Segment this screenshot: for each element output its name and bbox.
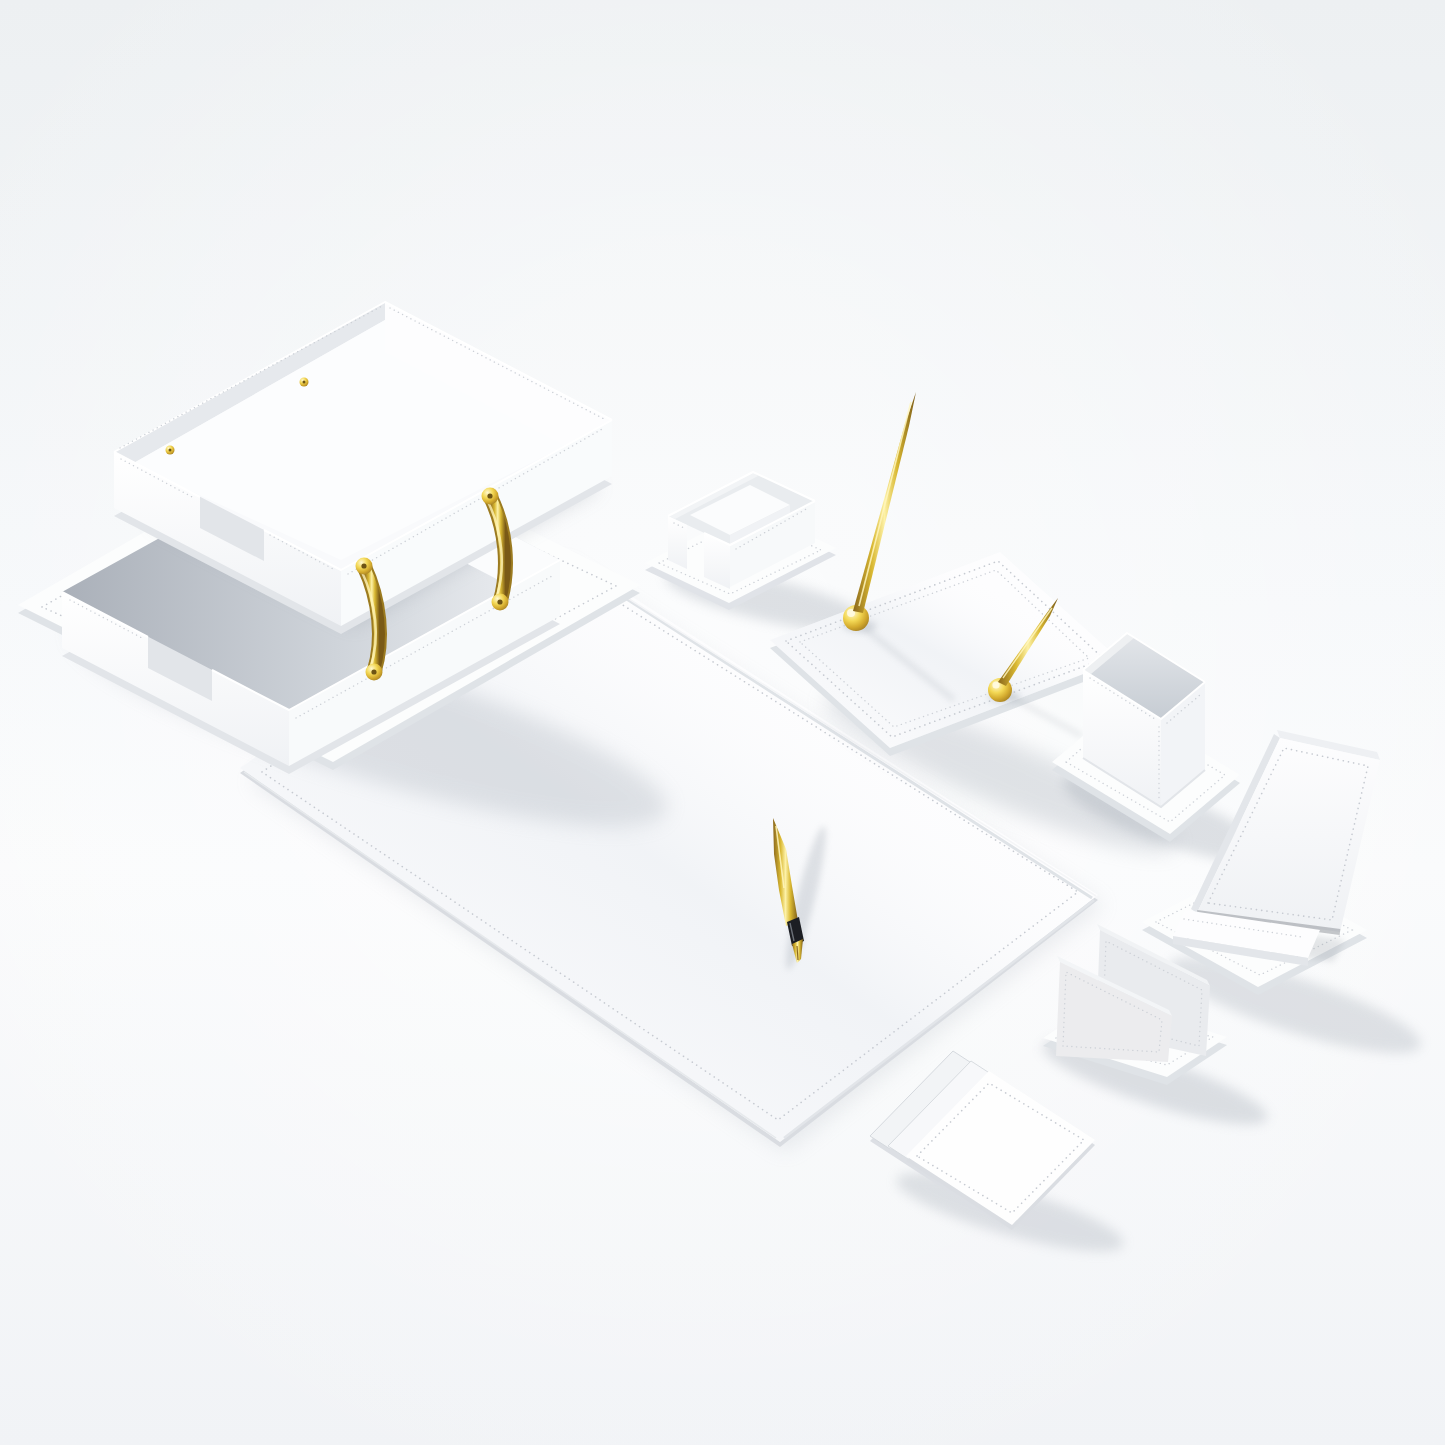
handle-rivet-screw	[361, 563, 366, 568]
handle-rivet-screw	[487, 493, 492, 498]
tray-screw-center	[169, 449, 172, 452]
handle-rivet-screw	[497, 599, 502, 604]
tray-screw-center	[303, 381, 306, 384]
handle-rivet-screw	[371, 669, 376, 674]
dome-specular	[992, 681, 999, 688]
product-photo-canvas	[0, 0, 1445, 1445]
desk-set-scene	[0, 0, 1445, 1445]
memo-left-wall-a	[668, 516, 687, 569]
